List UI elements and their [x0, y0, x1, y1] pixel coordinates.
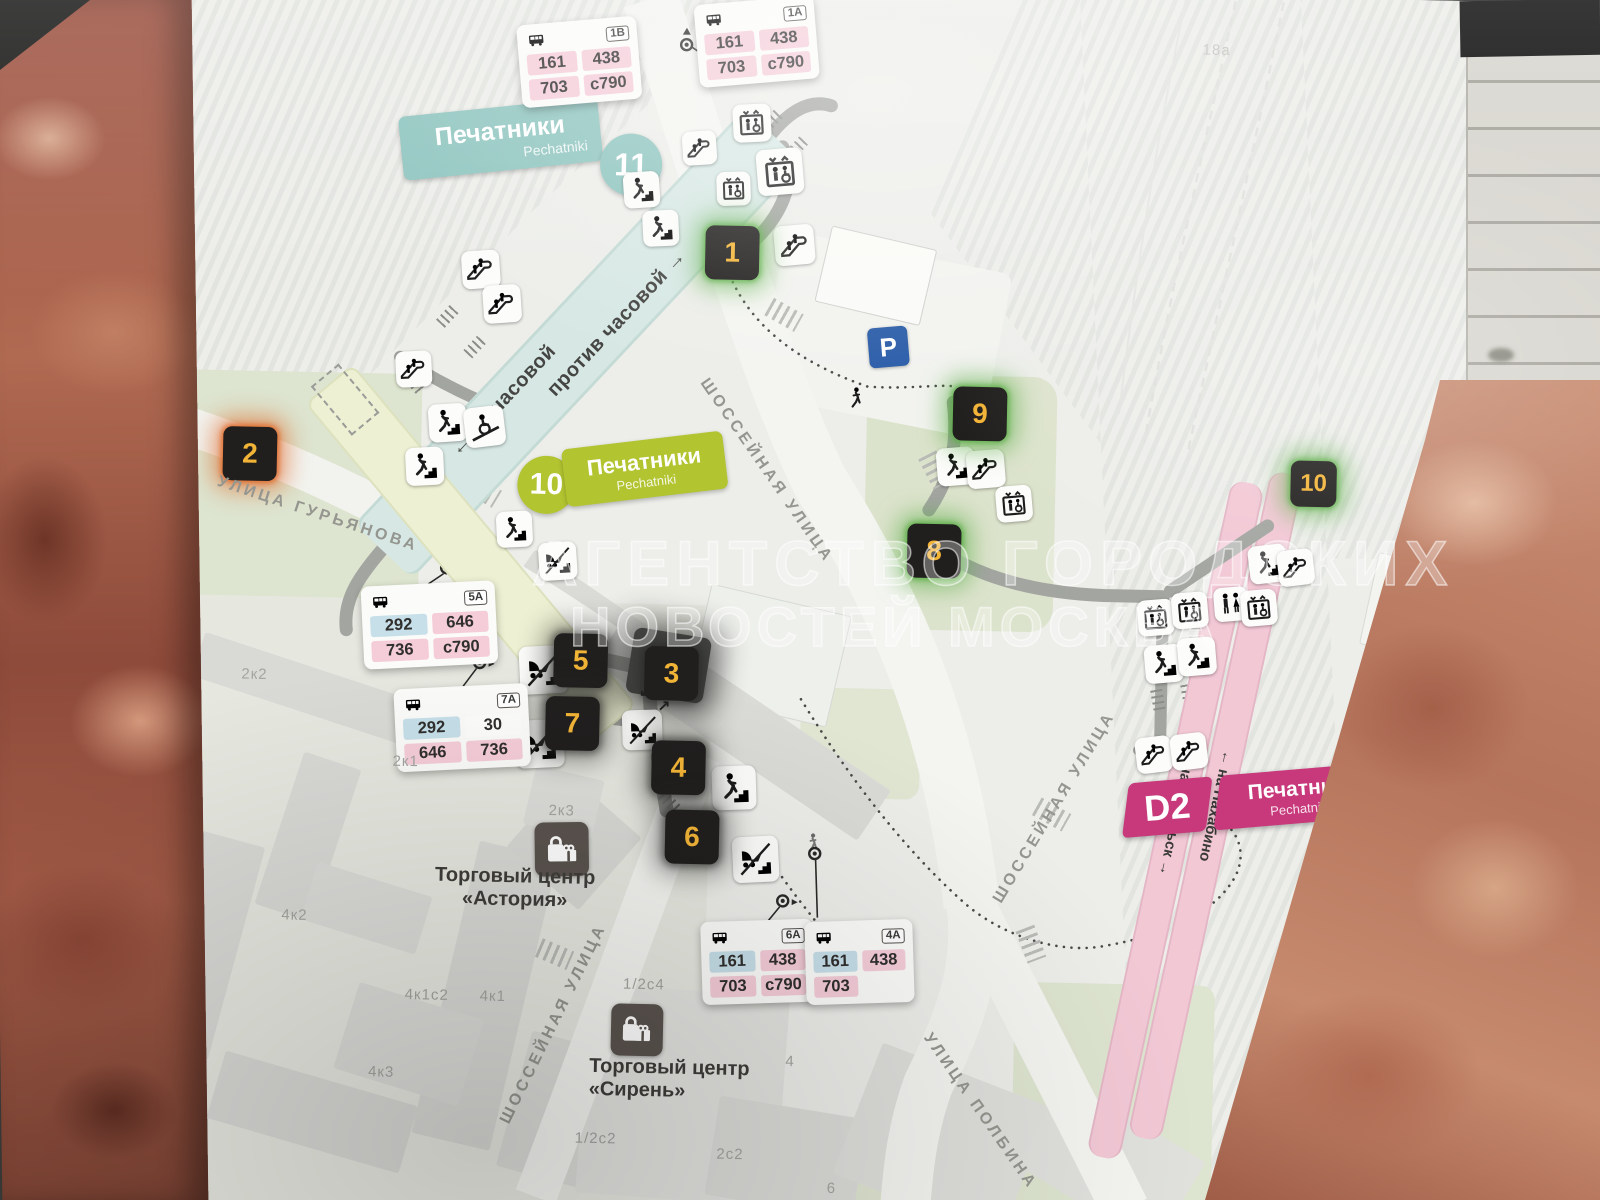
building-label: 4к1с2	[405, 986, 449, 1004]
wall-mark	[1488, 348, 1514, 362]
exit-number: 4	[670, 752, 686, 784]
elevator-icon	[995, 484, 1034, 523]
wheelchair-ramp-icon	[462, 404, 506, 448]
bus-icon	[402, 695, 425, 714]
building-label: 2с2	[716, 1146, 744, 1164]
elevator-icon	[732, 103, 772, 143]
d2-line-badge: D2	[1122, 776, 1213, 838]
escalator-icon	[395, 350, 433, 388]
bus-icon	[525, 30, 548, 50]
dark-corner-topright	[1460, 0, 1600, 57]
bus-route: 161	[709, 950, 755, 972]
bus-route: 438	[758, 26, 809, 51]
bus-stop-card-4a: 4А 161 438 703	[804, 919, 915, 1005]
parking-icon: P	[867, 325, 910, 368]
bus-route: 438	[581, 46, 632, 71]
bus-route: с790	[760, 51, 811, 76]
watermark-line2: НОВОСТЕЙ МОСКВА	[570, 594, 1221, 659]
exit-number: 2	[242, 437, 258, 469]
bus-route: с790	[760, 974, 806, 996]
bus-route: 736	[465, 738, 522, 762]
building-label: 6	[827, 1180, 837, 1197]
elevator-icon	[755, 147, 805, 197]
exit-10: 10	[1290, 460, 1337, 507]
elevator-icon	[716, 171, 751, 206]
stairs-person-icon	[711, 765, 756, 810]
bus-route: с790	[583, 71, 634, 96]
stop-code: 1В	[606, 25, 630, 42]
escalator-icon	[1169, 731, 1209, 771]
mall-siren-label: Торговый центр «Сирень»	[588, 1055, 809, 1106]
exit-number: 3	[663, 657, 679, 689]
bus-route: 292	[403, 716, 460, 740]
bus-icon	[812, 928, 835, 947]
bus-route: 161	[526, 51, 577, 76]
bus-stop-card-1v: 1В 161 438 703 с790	[516, 16, 643, 109]
mall-name-line1: Торговый центр	[425, 863, 605, 890]
bus-icon	[708, 928, 731, 947]
exit-9: 9	[952, 386, 1007, 441]
escalator-icon	[773, 223, 816, 266]
exit-4: 4	[651, 740, 706, 795]
building-label: 4к2	[281, 906, 308, 924]
exit-7: 7	[545, 696, 600, 751]
escalator-icon	[461, 249, 501, 289]
bus-icon	[369, 592, 392, 611]
stairs-person-icon	[622, 171, 660, 209]
bus-stop-card-6a: 6А 161 438 703 с790	[700, 919, 815, 1005]
building-label: 4к1	[479, 988, 506, 1006]
bus-route: 438	[760, 949, 806, 971]
exit-number: 6	[684, 821, 700, 853]
escalator-icon	[965, 449, 1006, 490]
mall-name-line2: «Сирень»	[588, 1078, 808, 1106]
stairs-person-icon	[427, 403, 467, 443]
bus-route: 703	[706, 55, 757, 80]
exit-number: 10	[1300, 470, 1327, 499]
bus-route: 30	[464, 713, 521, 737]
escalator-icon	[482, 284, 522, 324]
stop-code: 6А	[782, 927, 805, 943]
building-label: 4к3	[368, 1063, 395, 1081]
stop-code: 7А	[497, 692, 520, 708]
shopping-bags-icon	[610, 1003, 663, 1056]
stop-code: 4А	[882, 928, 905, 944]
bus-route: 292	[370, 614, 427, 638]
stairs-person-icon	[496, 510, 534, 548]
building-label: 1/2с4	[623, 976, 665, 994]
stairs-person-icon	[642, 209, 680, 247]
bus-route: 646	[431, 611, 488, 635]
watermark-line1: АГЕНТСТВО ГОРОДСКИХ	[532, 528, 1454, 600]
stairs-person-icon	[405, 446, 445, 486]
exit-2: 2	[222, 426, 277, 481]
escalator-icon	[681, 130, 717, 166]
building-label: 2к2	[241, 666, 268, 684]
building-label: 18а	[1202, 42, 1230, 60]
bus-stop-card-1a: 1А 161 438 703 с790	[693, 0, 820, 88]
line10-number: 10	[529, 468, 563, 503]
exit-number: 1	[724, 237, 740, 269]
marble-pillar-left	[0, 0, 208, 1200]
walking-person-icon	[843, 385, 870, 412]
bus-route: 703	[529, 76, 580, 101]
stop-code: 5А	[464, 589, 487, 605]
bus-stop-card-5a: 5А 292 646 736 с790	[360, 580, 498, 669]
escalator-icon	[1134, 735, 1174, 775]
building-label: 2к1	[392, 753, 419, 771]
bus-route: 703	[710, 975, 756, 997]
metro-station-map-photo: на Подольск → ← на Нахабино ← по часовой…	[0, 0, 1600, 1200]
exit-6: 6	[664, 809, 719, 864]
mall-name-line2: «Астория»	[424, 886, 604, 913]
building-label: 1/2с2	[575, 1130, 617, 1148]
building-label: 4	[785, 1053, 795, 1070]
bus-route: 438	[862, 949, 906, 971]
bus-icon	[702, 10, 725, 30]
d2-line-number: D2	[1143, 784, 1192, 830]
stop-code: 1А	[783, 4, 807, 21]
bus-route: с790	[433, 636, 490, 660]
bus-route: 161	[704, 30, 755, 55]
stroller-stairs-icon	[731, 835, 779, 883]
exit-number: 7	[564, 707, 580, 739]
exit-1: 1	[705, 225, 760, 280]
mall-astoria-label: Торговый центр «Астория»	[424, 863, 605, 913]
bus-route: 736	[371, 639, 428, 663]
building-label: 2к3	[548, 802, 575, 820]
walking-person-icon	[801, 831, 825, 855]
bus-route: 703	[814, 976, 858, 998]
bus-route: 161	[813, 951, 857, 973]
parking-label: P	[878, 331, 898, 363]
exit-number: 9	[972, 398, 988, 430]
